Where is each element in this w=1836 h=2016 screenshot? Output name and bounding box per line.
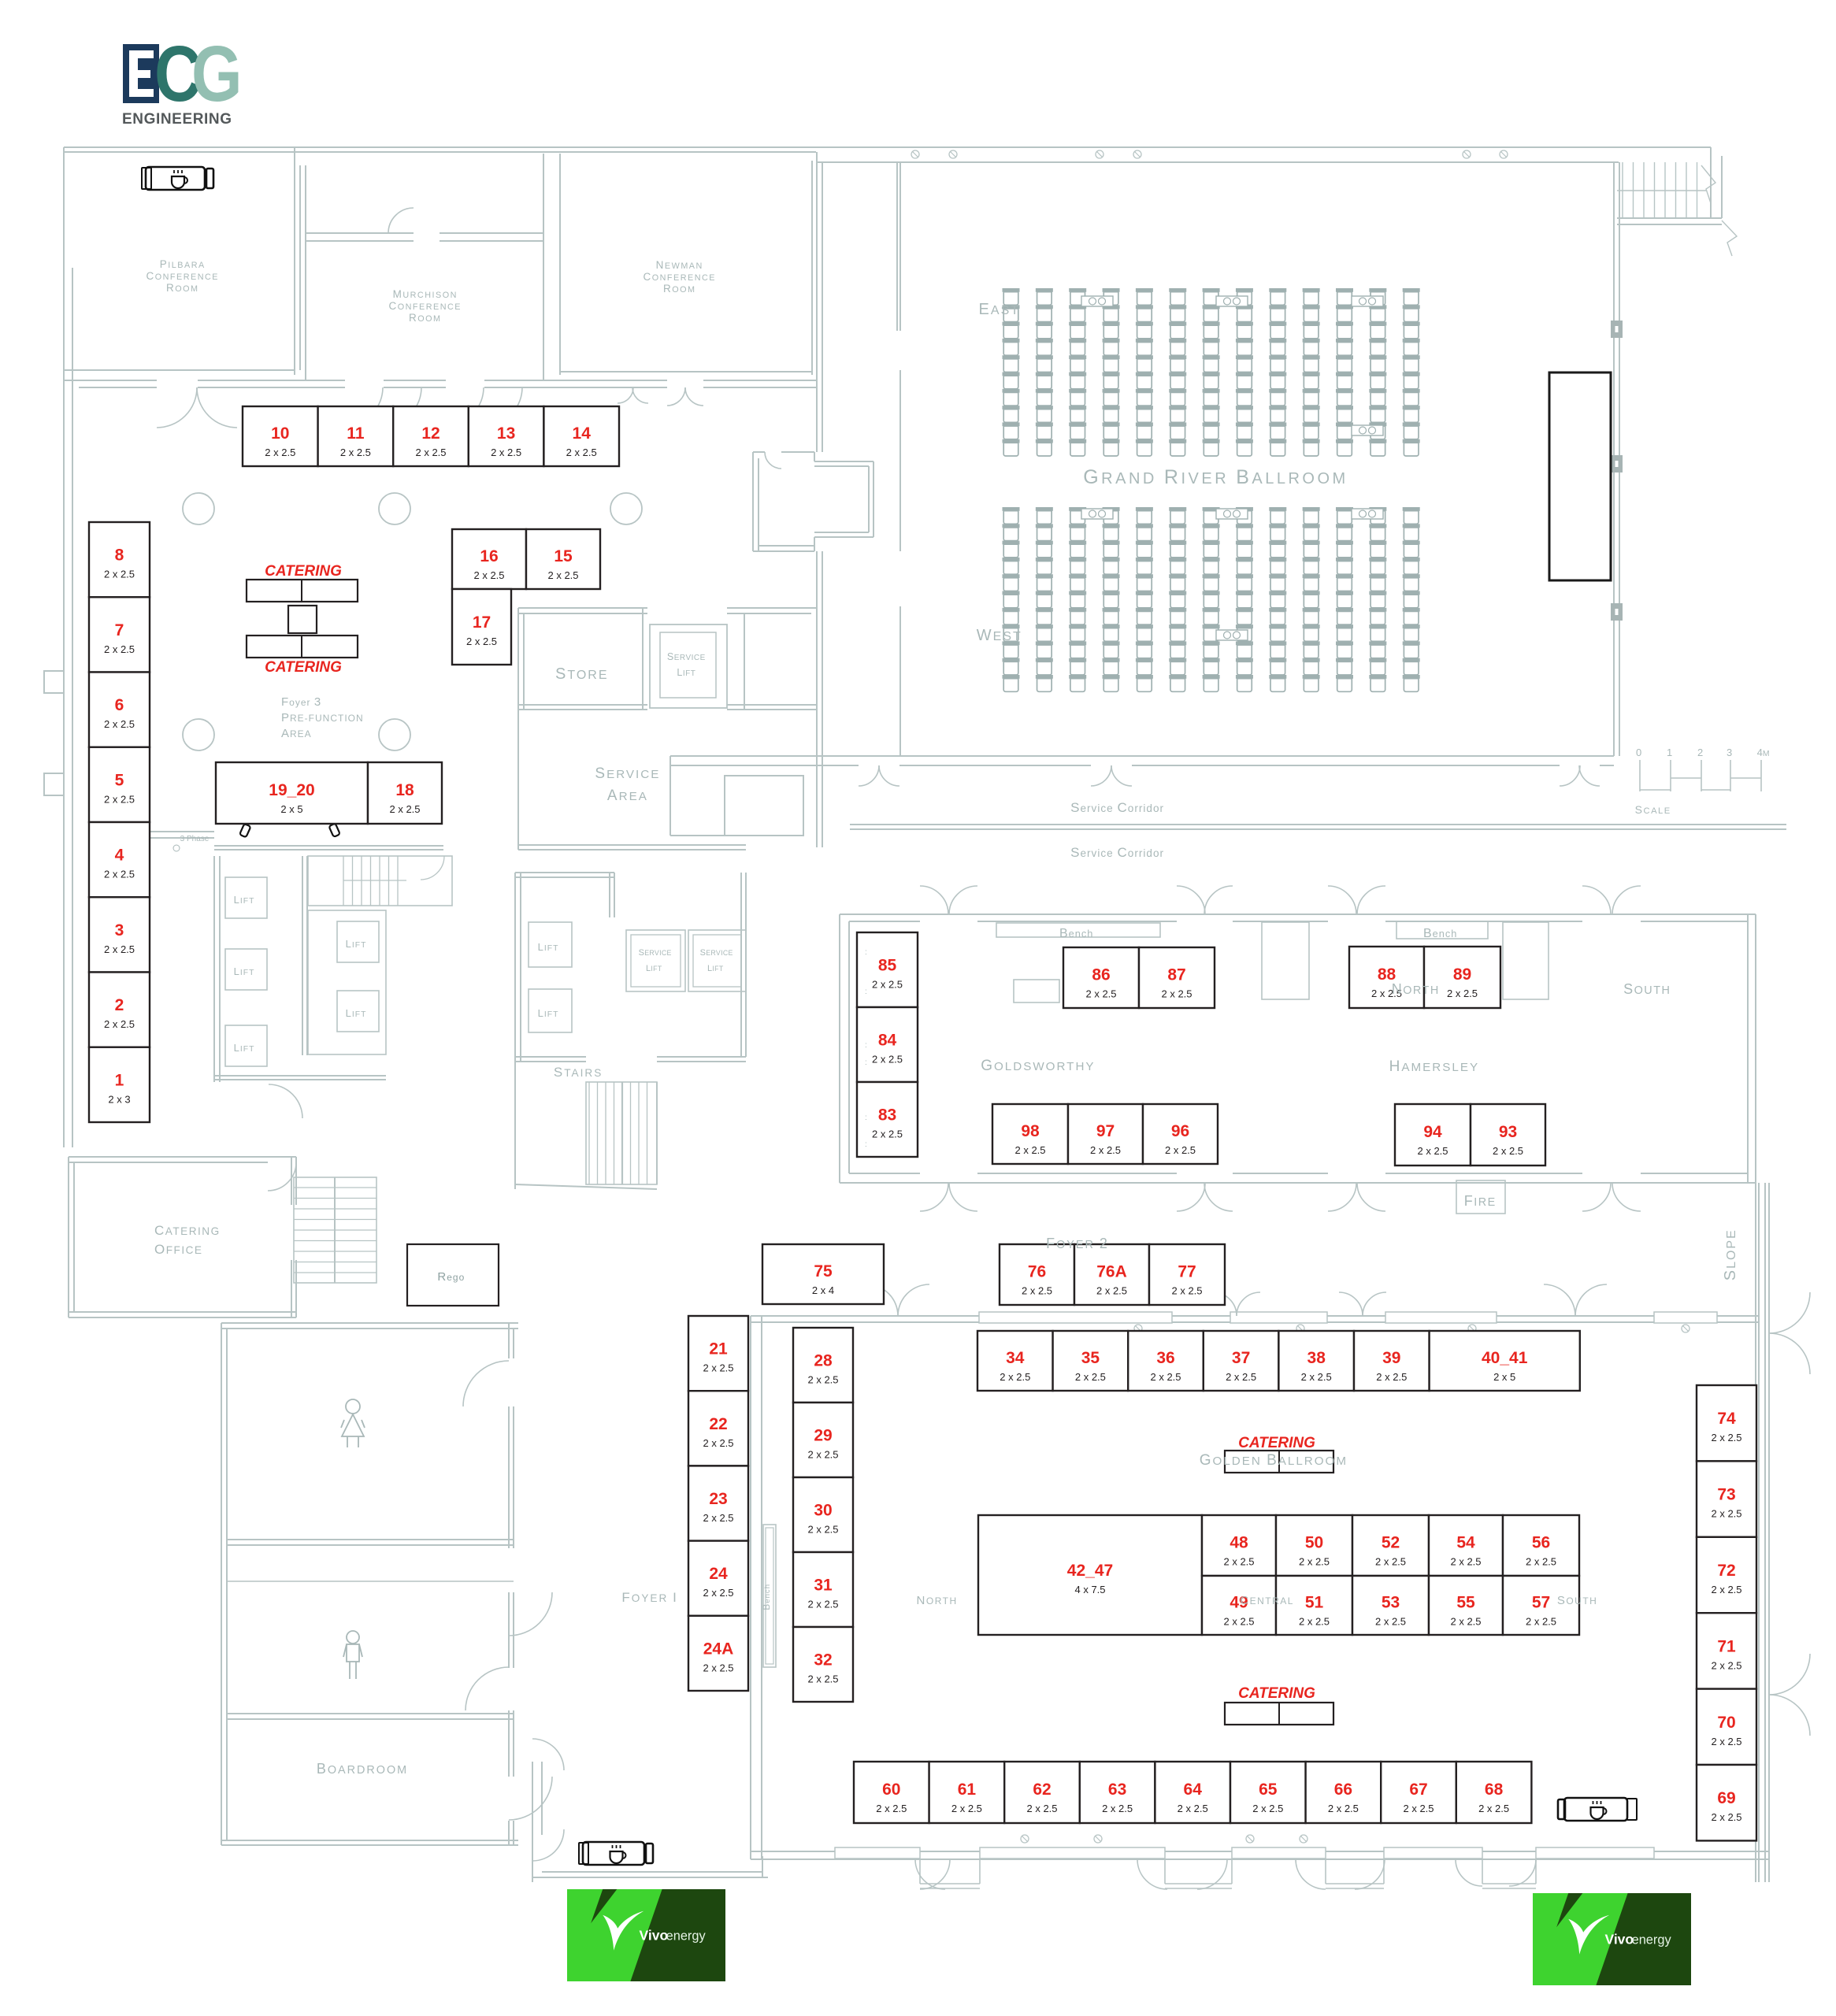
svg-text:76A: 76A	[1096, 1263, 1127, 1281]
svg-text:FOYER I: FOYER I	[621, 1590, 682, 1605]
svg-text:62: 62	[1033, 1781, 1051, 1799]
svg-text:7: 7	[115, 621, 124, 639]
svg-text:Rego: Rego	[437, 1270, 468, 1284]
svg-text:CONFERENCE: CONFERENCE	[643, 271, 719, 283]
svg-text:2 x 3: 2 x 3	[108, 1093, 130, 1105]
svg-text:6: 6	[115, 696, 124, 714]
svg-text:2 x 2.5: 2 x 2.5	[1102, 1803, 1133, 1814]
svg-text:52: 52	[1382, 1534, 1400, 1552]
svg-text:2 x 2.5: 2 x 2.5	[872, 1054, 903, 1065]
svg-text:2 x 2.5: 2 x 2.5	[1090, 1144, 1121, 1156]
svg-text:36: 36	[1156, 1349, 1174, 1367]
svg-text:2 x 2.5: 2 x 2.5	[807, 1599, 838, 1610]
svg-text:2 x 5: 2 x 5	[1493, 1371, 1515, 1383]
svg-text:61: 61	[958, 1781, 977, 1799]
svg-text:2 x 2.5: 2 x 2.5	[1223, 1556, 1254, 1568]
svg-text:2 x 2.5: 2 x 2.5	[1711, 1811, 1741, 1823]
svg-text:67: 67	[1409, 1781, 1427, 1799]
svg-text:16: 16	[480, 547, 498, 565]
svg-text:SLOPE: SLOPE	[1722, 1224, 1739, 1280]
svg-text:2 x 2.5: 2 x 2.5	[1375, 1556, 1406, 1568]
svg-text:2 x 2.5: 2 x 2.5	[703, 1587, 733, 1599]
svg-text:29: 29	[814, 1427, 832, 1445]
svg-text:NORTH: NORTH	[917, 1594, 962, 1607]
svg-text:STORE: STORE	[555, 665, 614, 683]
svg-text:Bench: Bench	[1059, 927, 1097, 940]
svg-text:CENTRAL: CENTRAL	[1240, 1594, 1298, 1607]
svg-text:2 x 2.5: 2 x 2.5	[1711, 1584, 1741, 1595]
svg-text:2 x 2.5: 2 x 2.5	[340, 447, 371, 458]
svg-text:CONFERENCE: CONFERENCE	[146, 270, 222, 282]
svg-text:56: 56	[1532, 1534, 1550, 1552]
svg-text::: :	[865, 1140, 867, 1149]
svg-text:2 x 2.5: 2 x 2.5	[473, 569, 504, 581]
svg-text:2 x 2.5: 2 x 2.5	[1085, 988, 1116, 1000]
svg-text:28: 28	[814, 1352, 833, 1370]
svg-text:51: 51	[1305, 1594, 1324, 1612]
svg-text:2 x 2.5: 2 x 2.5	[1299, 1616, 1330, 1628]
svg-text:85: 85	[878, 957, 897, 975]
svg-text:2 x 2.5: 2 x 2.5	[1014, 1144, 1045, 1156]
svg-text:SOUTH: SOUTH	[1557, 1594, 1601, 1607]
svg-text:97: 97	[1096, 1122, 1115, 1140]
svg-text:LIFT: LIFT	[677, 667, 698, 678]
svg-text::: :	[865, 988, 867, 996]
svg-text::: :	[865, 948, 867, 957]
svg-text:55: 55	[1456, 1594, 1475, 1612]
svg-text:2 x 2.5: 2 x 2.5	[1161, 988, 1192, 1000]
svg-text:2 x 2.5: 2 x 2.5	[1711, 1736, 1741, 1747]
svg-text:19_20: 19_20	[269, 781, 314, 799]
svg-text:2 x 2.5: 2 x 2.5	[1526, 1556, 1556, 1568]
svg-text:83: 83	[878, 1106, 896, 1125]
svg-text:SERVICE: SERVICE	[667, 651, 708, 662]
svg-text:2 x 2.5: 2 x 2.5	[104, 569, 135, 580]
svg-text:2 x 2.5: 2 x 2.5	[1299, 1556, 1330, 1568]
svg-text:STAIRS: STAIRS	[554, 1065, 607, 1080]
svg-text:2 x 2.5: 2 x 2.5	[265, 447, 295, 458]
svg-text:2 x 2.5: 2 x 2.5	[1526, 1616, 1556, 1628]
svg-text:75: 75	[814, 1262, 833, 1280]
svg-text:1: 1	[115, 1071, 124, 1089]
svg-text:NEWMAN: NEWMAN	[656, 259, 707, 271]
svg-text:23: 23	[709, 1490, 727, 1508]
svg-text:ROOM: ROOM	[166, 282, 202, 294]
svg-text:CATERING: CATERING	[1238, 1685, 1315, 1702]
svg-text:17: 17	[473, 613, 491, 632]
svg-text:2 x 2.5: 2 x 2.5	[703, 1437, 733, 1449]
svg-text:70: 70	[1717, 1714, 1735, 1732]
svg-text:53: 53	[1382, 1594, 1400, 1612]
svg-text::: :	[865, 1114, 867, 1122]
svg-text:HAMERSLEY: HAMERSLEY	[1389, 1058, 1485, 1075]
svg-text:10: 10	[271, 424, 289, 443]
svg-text:38: 38	[1307, 1349, 1326, 1367]
svg-text:37: 37	[1232, 1349, 1250, 1367]
svg-text:2: 2	[115, 996, 124, 1014]
svg-text:2 x 2.5: 2 x 2.5	[104, 943, 135, 955]
svg-text:AREA: AREA	[607, 787, 653, 804]
svg-text:OFFICE: OFFICE	[154, 1242, 207, 1257]
svg-text:Service Corridor: Service Corridor	[1070, 845, 1168, 860]
svg-text:48: 48	[1230, 1534, 1248, 1552]
svg-text:13: 13	[497, 424, 515, 443]
svg-text:65: 65	[1259, 1781, 1278, 1799]
svg-text:11: 11	[347, 424, 365, 443]
svg-text:2 x 2.5: 2 x 2.5	[1165, 1144, 1196, 1156]
svg-text:2 x 2.5: 2 x 2.5	[872, 979, 903, 991]
svg-text:4: 4	[115, 847, 124, 865]
svg-text:42_47: 42_47	[1067, 1562, 1113, 1580]
svg-text:EAST: EAST	[979, 301, 1026, 318]
svg-text:8: 8	[115, 547, 124, 565]
svg-text:CATERING: CATERING	[154, 1223, 224, 1238]
svg-text::: :	[865, 1058, 867, 1067]
svg-text:40_41: 40_41	[1482, 1349, 1528, 1367]
svg-text:72: 72	[1717, 1562, 1735, 1580]
svg-text:CONFERENCE: CONFERENCE	[388, 300, 465, 312]
svg-text:2 x 2.5: 2 x 2.5	[1711, 1508, 1741, 1520]
svg-text:24: 24	[709, 1565, 728, 1583]
svg-text:2 x 2.5: 2 x 2.5	[1711, 1659, 1741, 1671]
svg-text:PILBARA: PILBARA	[160, 258, 209, 270]
svg-text:2 x 2.5: 2 x 2.5	[1022, 1285, 1052, 1297]
svg-text:22: 22	[709, 1415, 727, 1433]
svg-text:24A: 24A	[703, 1640, 734, 1658]
svg-text:2 x 2.5: 2 x 2.5	[951, 1803, 982, 1814]
svg-text:14: 14	[573, 424, 592, 443]
svg-text:2 x 2.5: 2 x 2.5	[1478, 1803, 1509, 1814]
svg-text:57: 57	[1532, 1594, 1550, 1612]
svg-text:64: 64	[1184, 1781, 1203, 1799]
svg-text:71: 71	[1717, 1637, 1736, 1655]
svg-text:AREA: AREA	[281, 727, 315, 740]
svg-text:2 x 2.5: 2 x 2.5	[104, 869, 135, 880]
svg-text:21: 21	[709, 1340, 728, 1358]
svg-text:LIFT: LIFT	[646, 964, 664, 973]
svg-text:2 x 2.5: 2 x 2.5	[1171, 1285, 1202, 1297]
svg-text:2 x 2.5: 2 x 2.5	[1376, 1371, 1407, 1383]
svg-text:2 x 2.5: 2 x 2.5	[1252, 1803, 1283, 1814]
svg-text:32: 32	[814, 1651, 832, 1669]
svg-text:2 x 2.5: 2 x 2.5	[1447, 988, 1478, 999]
svg-text:4 x 7.5: 4 x 7.5	[1074, 1584, 1105, 1595]
svg-text:93: 93	[1499, 1123, 1517, 1141]
svg-text:2 x 2.5: 2 x 2.5	[1026, 1803, 1057, 1814]
svg-text:54: 54	[1456, 1534, 1475, 1552]
svg-text:LIFT: LIFT	[707, 964, 725, 973]
svg-text:30: 30	[814, 1502, 832, 1520]
svg-text:MURCHISON: MURCHISON	[393, 288, 462, 300]
svg-text:5: 5	[115, 771, 124, 789]
svg-text:2 x 2.5: 2 x 2.5	[1226, 1371, 1256, 1383]
svg-text:PRE-FUNCTION: PRE-FUNCTION	[281, 711, 367, 724]
svg-text:2 x 2.5: 2 x 2.5	[807, 1524, 838, 1536]
svg-text:96: 96	[1171, 1122, 1189, 1140]
svg-text:SERVICE: SERVICE	[639, 948, 674, 958]
svg-text:2 x 2.5: 2 x 2.5	[104, 1018, 135, 1030]
svg-text:CATERING: CATERING	[265, 563, 342, 580]
svg-text:77: 77	[1178, 1263, 1196, 1281]
svg-text:ENGINEERING: ENGINEERING	[122, 111, 232, 128]
svg-text:63: 63	[1108, 1781, 1126, 1799]
svg-text:2 x 2.5: 2 x 2.5	[703, 1512, 733, 1524]
svg-text:2 x 2.5: 2 x 2.5	[1301, 1371, 1332, 1383]
svg-text:2 x 2.5: 2 x 2.5	[876, 1803, 907, 1814]
svg-text:ROOM: ROOM	[409, 312, 445, 324]
svg-text:66: 66	[1334, 1781, 1352, 1799]
svg-text:2 x 2.5: 2 x 2.5	[1096, 1285, 1127, 1297]
svg-text:89: 89	[1453, 965, 1471, 984]
svg-text:94: 94	[1423, 1123, 1442, 1141]
svg-text:GOLDEN BALLROOM: GOLDEN BALLROOM	[1200, 1452, 1353, 1469]
svg-text:CATERING: CATERING	[1238, 1435, 1315, 1451]
svg-text:2 x 2.5: 2 x 2.5	[1493, 1145, 1523, 1157]
svg-text:2 x 2.5: 2 x 2.5	[491, 447, 521, 458]
svg-text:2 x 2.5: 2 x 2.5	[1150, 1371, 1181, 1383]
svg-text:86: 86	[1092, 966, 1110, 984]
svg-text:Foyer 3: Foyer 3	[281, 695, 325, 709]
svg-text:2 x 2.5: 2 x 2.5	[1178, 1803, 1208, 1814]
svg-text:2 x 2.5: 2 x 2.5	[807, 1673, 838, 1685]
svg-text:2 x 2.5: 2 x 2.5	[466, 636, 497, 647]
svg-text:WEST: WEST	[977, 627, 1027, 644]
svg-text:G: G	[191, 31, 243, 118]
svg-text:3 Phase: 3 Phase	[180, 835, 210, 843]
svg-text:2 x 2.5: 2 x 2.5	[1403, 1803, 1434, 1814]
svg-text:50: 50	[1305, 1534, 1323, 1552]
svg-text:2 x 2.5: 2 x 2.5	[1375, 1616, 1406, 1628]
svg-text:2 x 2.5: 2 x 2.5	[547, 569, 578, 581]
svg-text:2 x 5: 2 x 5	[280, 803, 302, 815]
svg-text:2 x 2.5: 2 x 2.5	[104, 643, 135, 655]
svg-text:2 x 2.5: 2 x 2.5	[1450, 1616, 1481, 1628]
svg-text:35: 35	[1081, 1349, 1100, 1367]
svg-text:energy: energy	[666, 1929, 707, 1943]
svg-text:3: 3	[115, 921, 124, 939]
svg-text:2 x 2.5: 2 x 2.5	[1711, 1432, 1741, 1443]
svg-text:ROOM: ROOM	[663, 283, 699, 295]
svg-text:2 x 2.5: 2 x 2.5	[1450, 1556, 1481, 1568]
svg-text:energy: energy	[1632, 1933, 1672, 1947]
svg-text:Service Corridor: Service Corridor	[1070, 800, 1168, 815]
svg-text:2 x 2.5: 2 x 2.5	[104, 793, 135, 805]
svg-text:34: 34	[1006, 1349, 1025, 1367]
svg-text:Vivo: Vivo	[1604, 1931, 1634, 1947]
svg-text:76: 76	[1028, 1263, 1046, 1281]
svg-text:CATERING: CATERING	[265, 659, 342, 676]
svg-text:74: 74	[1717, 1410, 1736, 1428]
svg-text:2 x 2.5: 2 x 2.5	[807, 1449, 838, 1461]
svg-text:2 x 2.5: 2 x 2.5	[872, 1128, 903, 1140]
svg-text:2 x 2.5: 2 x 2.5	[415, 447, 446, 458]
svg-text:84: 84	[878, 1032, 897, 1050]
svg-text:69: 69	[1717, 1789, 1735, 1807]
svg-text:31: 31	[814, 1577, 833, 1595]
svg-text:2 x 2.5: 2 x 2.5	[703, 1362, 733, 1374]
svg-text:87: 87	[1167, 966, 1185, 984]
svg-text:2 x 4: 2 x 4	[812, 1284, 834, 1296]
svg-text:15: 15	[554, 547, 573, 565]
svg-text:Vivo: Vivo	[639, 1927, 668, 1943]
svg-text:SERVICE: SERVICE	[595, 765, 665, 782]
svg-text:39: 39	[1382, 1349, 1400, 1367]
svg-text:Bench: Bench	[1423, 927, 1461, 940]
svg-text:98: 98	[1021, 1122, 1040, 1140]
svg-text:2 x 2.5: 2 x 2.5	[389, 803, 420, 815]
svg-text:GOLDSWORTHY: GOLDSWORTHY	[981, 1058, 1100, 1074]
svg-text:2 x 2.5: 2 x 2.5	[1223, 1616, 1254, 1628]
svg-text:Bench: Bench	[761, 1581, 772, 1610]
svg-text:60: 60	[882, 1781, 900, 1799]
svg-text:2 x 2.5: 2 x 2.5	[1000, 1371, 1030, 1383]
svg-text::: :	[865, 1041, 867, 1050]
svg-text:2 x 2.5: 2 x 2.5	[566, 447, 597, 458]
svg-text:SERVICE: SERVICE	[700, 948, 736, 958]
svg-text:12: 12	[421, 424, 440, 443]
svg-text:GRAND RIVER BALLROOM: GRAND RIVER BALLROOM	[1083, 466, 1356, 488]
svg-text:73: 73	[1717, 1486, 1735, 1504]
svg-text:2 x 2.5: 2 x 2.5	[1075, 1371, 1106, 1383]
svg-text:2 x 2.5: 2 x 2.5	[104, 718, 135, 730]
svg-text:18: 18	[395, 781, 414, 799]
svg-text:68: 68	[1485, 1781, 1504, 1799]
svg-text:2 x 2.5: 2 x 2.5	[703, 1662, 733, 1673]
svg-text:2 x 2.5: 2 x 2.5	[1417, 1145, 1448, 1157]
svg-text:2 x 2.5: 2 x 2.5	[807, 1374, 838, 1386]
svg-text:2 x 2.5: 2 x 2.5	[1328, 1803, 1359, 1814]
